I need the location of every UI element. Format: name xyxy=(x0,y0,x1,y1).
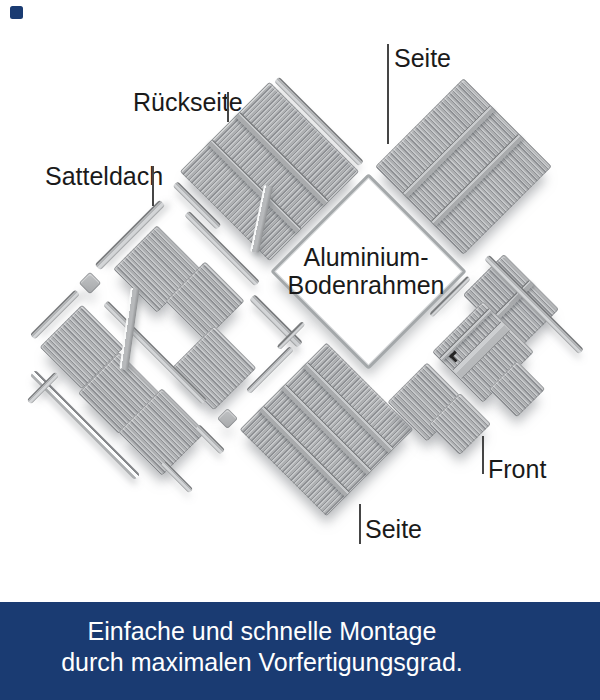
label-seite-top: Seite xyxy=(394,44,451,73)
shed-parts-diagram: Satteldach Rückseite Seite Seite Front A… xyxy=(0,0,600,700)
panel-rail xyxy=(236,112,329,205)
panel-rail xyxy=(403,106,495,198)
small-connector-piece xyxy=(217,408,238,429)
label-seite-bottom: Seite xyxy=(365,515,422,544)
label-line-rueckseite xyxy=(227,92,229,122)
profile-bar-lower xyxy=(161,461,194,494)
label-line-front xyxy=(482,436,484,474)
panel-rail xyxy=(260,406,350,496)
brand-corner-mark xyxy=(10,6,23,19)
label-front: Front xyxy=(488,455,546,484)
label-line-seite-top xyxy=(387,44,389,144)
banner: Einfache und schnelle Montage durch maxi… xyxy=(0,602,600,700)
panel-rail xyxy=(303,363,393,453)
banner-line2: durch maximalen Vorfertigungsgrad. xyxy=(0,647,524,678)
profile-bar-mid xyxy=(195,424,225,454)
banner-line1: Einfache und schnelle Montage xyxy=(0,616,524,647)
roof-panel-5 xyxy=(172,326,257,411)
label-floor-frame-line1: Aluminium- xyxy=(266,243,466,271)
panel-rail xyxy=(282,384,372,474)
panel-rail xyxy=(431,134,523,226)
label-line-seite-bottom xyxy=(359,504,361,544)
label-floor-frame: Aluminium- Bodenrahmen xyxy=(266,243,466,299)
label-satteldach: Satteldach xyxy=(45,162,163,191)
door-stile xyxy=(453,322,510,379)
label-line-satteldach xyxy=(152,166,154,206)
gable-piece xyxy=(79,272,102,295)
banner-text: Einfache und schnelle Montage durch maxi… xyxy=(0,616,524,678)
profile-bar-frame-left xyxy=(249,294,303,348)
label-floor-frame-line2: Bodenrahmen xyxy=(266,271,466,299)
panel-rail xyxy=(208,140,301,233)
